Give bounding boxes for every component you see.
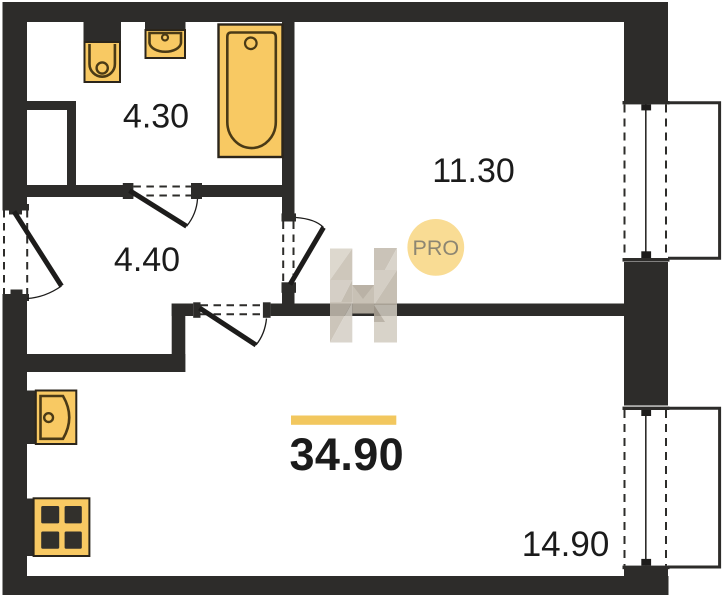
svg-text:11.30: 11.30 [432,152,515,190]
svg-text:4.30: 4.30 [123,97,189,135]
svg-text:4.40: 4.40 [114,241,180,279]
svg-text:PRO: PRO [413,236,460,260]
svg-text:14.90: 14.90 [522,525,610,564]
svg-text:34.90: 34.90 [290,429,405,480]
